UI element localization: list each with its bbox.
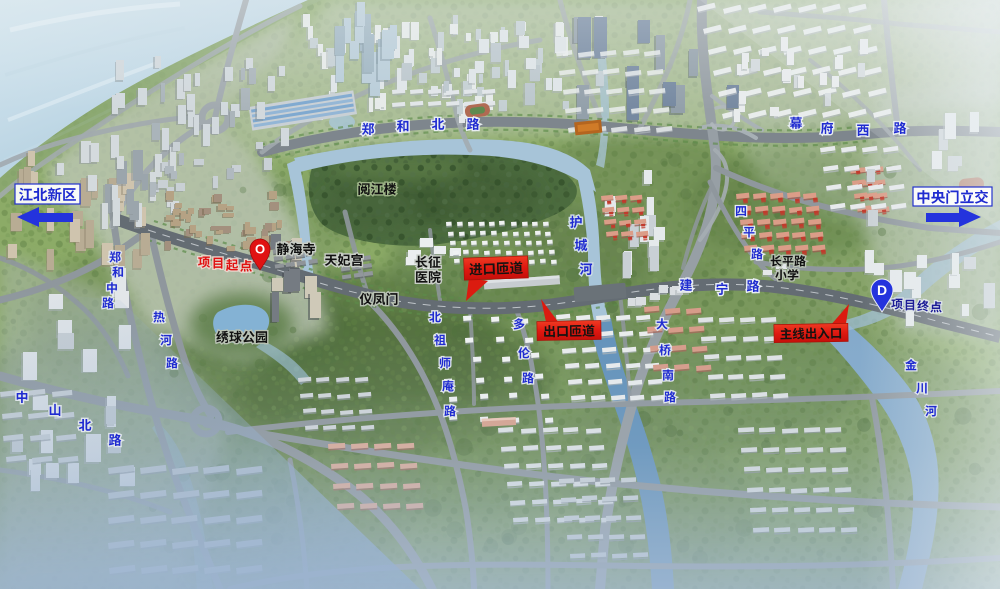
svg-text:O: O — [255, 242, 265, 257]
svg-text:D: D — [877, 282, 887, 298]
